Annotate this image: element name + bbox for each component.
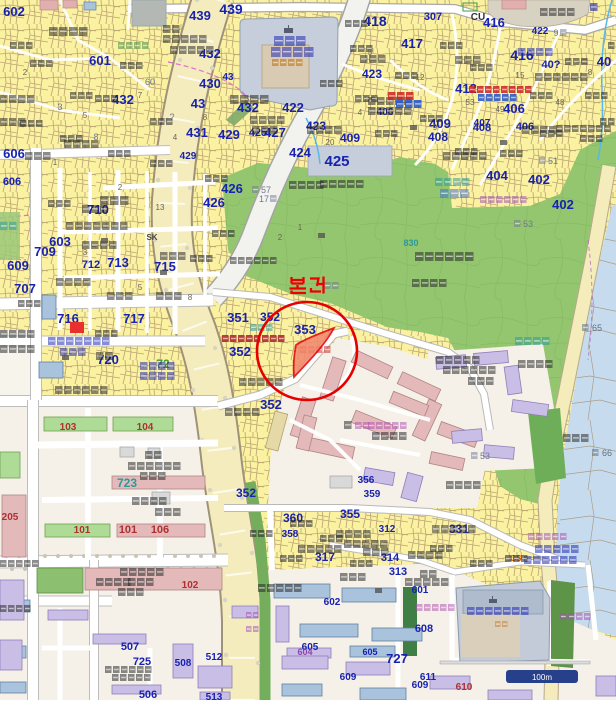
svg-text:606: 606 — [3, 146, 25, 161]
svg-text:313: 313 — [389, 566, 407, 578]
svg-text:352: 352 — [236, 486, 256, 500]
svg-text:408: 408 — [473, 122, 491, 134]
svg-text:352: 352 — [260, 397, 282, 412]
svg-text:358: 358 — [282, 529, 299, 540]
svg-text:507: 507 — [121, 641, 139, 653]
svg-text:43: 43 — [191, 96, 205, 111]
svg-text:1: 1 — [53, 158, 58, 167]
svg-text:53: 53 — [523, 219, 533, 229]
svg-text:352: 352 — [229, 344, 251, 359]
svg-text:604: 604 — [297, 647, 312, 657]
svg-text:717: 717 — [123, 311, 145, 326]
svg-text:103: 103 — [60, 422, 77, 433]
svg-text:53: 53 — [480, 451, 490, 461]
svg-text:7: 7 — [393, 133, 398, 142]
svg-text:431: 431 — [186, 125, 208, 140]
svg-text:424: 424 — [289, 145, 311, 160]
svg-text:3: 3 — [83, 248, 88, 257]
svg-text:7: 7 — [138, 91, 143, 100]
svg-text:101: 101 — [119, 524, 137, 536]
svg-text:423: 423 — [362, 67, 382, 81]
svg-text:609: 609 — [340, 672, 357, 683]
svg-text:40?: 40? — [542, 59, 561, 71]
svg-text:5: 5 — [138, 283, 143, 292]
svg-text:426: 426 — [221, 181, 243, 196]
svg-text:8: 8 — [203, 113, 208, 122]
svg-text:49: 49 — [496, 105, 505, 114]
svg-text:430: 430 — [199, 76, 221, 91]
svg-text:8: 8 — [588, 68, 593, 77]
svg-text:3: 3 — [57, 102, 62, 112]
svg-text:513: 513 — [206, 692, 223, 700]
svg-text:508: 508 — [175, 658, 192, 669]
svg-text:4: 4 — [358, 108, 363, 117]
svg-text:5: 5 — [368, 48, 373, 57]
svg-text:205: 205 — [2, 512, 19, 523]
svg-text:4: 4 — [173, 133, 178, 142]
svg-text:CU: CU — [471, 12, 485, 23]
svg-text:426: 426 — [203, 195, 225, 210]
svg-text:9: 9 — [553, 28, 558, 38]
svg-text:60: 60 — [145, 77, 155, 87]
svg-text:602: 602 — [3, 4, 25, 19]
svg-text:48: 48 — [556, 98, 565, 107]
svg-text:506: 506 — [139, 689, 157, 700]
svg-text:608: 608 — [415, 623, 433, 635]
svg-text:312: 312 — [379, 524, 396, 535]
svg-text:100m: 100m — [532, 673, 552, 682]
svg-text:422: 422 — [282, 100, 304, 115]
svg-text:422: 422 — [532, 26, 549, 37]
svg-text:20: 20 — [326, 138, 335, 147]
svg-text:101: 101 — [74, 525, 91, 536]
svg-text:5: 5 — [83, 111, 88, 120]
svg-text:102: 102 — [182, 580, 199, 591]
svg-text:402: 402 — [552, 197, 574, 212]
svg-text:713: 713 — [107, 255, 129, 270]
svg-text:51: 51 — [548, 156, 558, 166]
svg-text:709: 709 — [34, 244, 56, 259]
svg-text:65: 65 — [592, 323, 602, 333]
svg-text:609: 609 — [7, 258, 29, 273]
svg-text:12: 12 — [416, 73, 425, 82]
svg-text:15: 15 — [516, 71, 525, 80]
svg-text:8: 8 — [188, 293, 193, 302]
svg-text:40: 40 — [597, 54, 611, 69]
svg-text:439: 439 — [189, 8, 211, 23]
svg-text:416: 416 — [483, 15, 505, 30]
svg-text:356: 356 — [358, 475, 375, 486]
svg-text:2: 2 — [118, 183, 123, 192]
svg-text:307: 307 — [424, 11, 442, 23]
svg-text:602: 602 — [324, 597, 341, 608]
svg-text:429: 429 — [180, 151, 197, 162]
svg-text:104: 104 — [137, 422, 154, 433]
svg-text:610: 610 — [456, 682, 473, 693]
svg-text:417: 417 — [401, 36, 423, 51]
svg-text:601: 601 — [89, 53, 111, 68]
svg-text:408: 408 — [428, 130, 448, 144]
svg-text:43: 43 — [222, 72, 234, 83]
svg-text:727: 727 — [386, 651, 408, 666]
svg-text:712: 712 — [82, 259, 100, 271]
svg-text:9: 9 — [433, 123, 438, 132]
svg-text:402: 402 — [528, 172, 550, 187]
svg-text:53: 53 — [466, 98, 475, 107]
svg-text:830: 830 — [403, 238, 418, 248]
svg-text:359: 359 — [364, 489, 381, 500]
svg-text:404: 404 — [486, 168, 508, 183]
svg-text:353: 353 — [294, 322, 316, 337]
svg-text:707: 707 — [14, 281, 36, 296]
svg-text:605: 605 — [362, 647, 377, 657]
svg-text:409: 409 — [340, 131, 360, 145]
svg-text:406: 406 — [503, 101, 525, 116]
svg-text:2: 2 — [23, 68, 28, 77]
svg-text:429: 429 — [218, 127, 240, 142]
svg-text:611: 611 — [420, 672, 437, 683]
svg-text:425: 425 — [324, 153, 349, 170]
svg-text:106: 106 — [151, 524, 169, 536]
svg-text:17: 17 — [259, 194, 269, 204]
svg-text:13: 13 — [156, 203, 165, 212]
svg-text:355: 355 — [340, 507, 360, 521]
svg-text:1: 1 — [298, 223, 303, 232]
svg-text:723: 723 — [117, 476, 137, 490]
svg-text:439: 439 — [219, 1, 243, 17]
svg-text:SK: SK — [146, 233, 157, 242]
svg-text:601: 601 — [412, 585, 429, 596]
svg-text:606: 606 — [3, 176, 21, 188]
svg-text:2: 2 — [278, 233, 283, 242]
svg-text:66: 66 — [602, 448, 612, 458]
svg-text:512: 512 — [206, 652, 223, 663]
svg-text:351: 351 — [227, 310, 249, 325]
